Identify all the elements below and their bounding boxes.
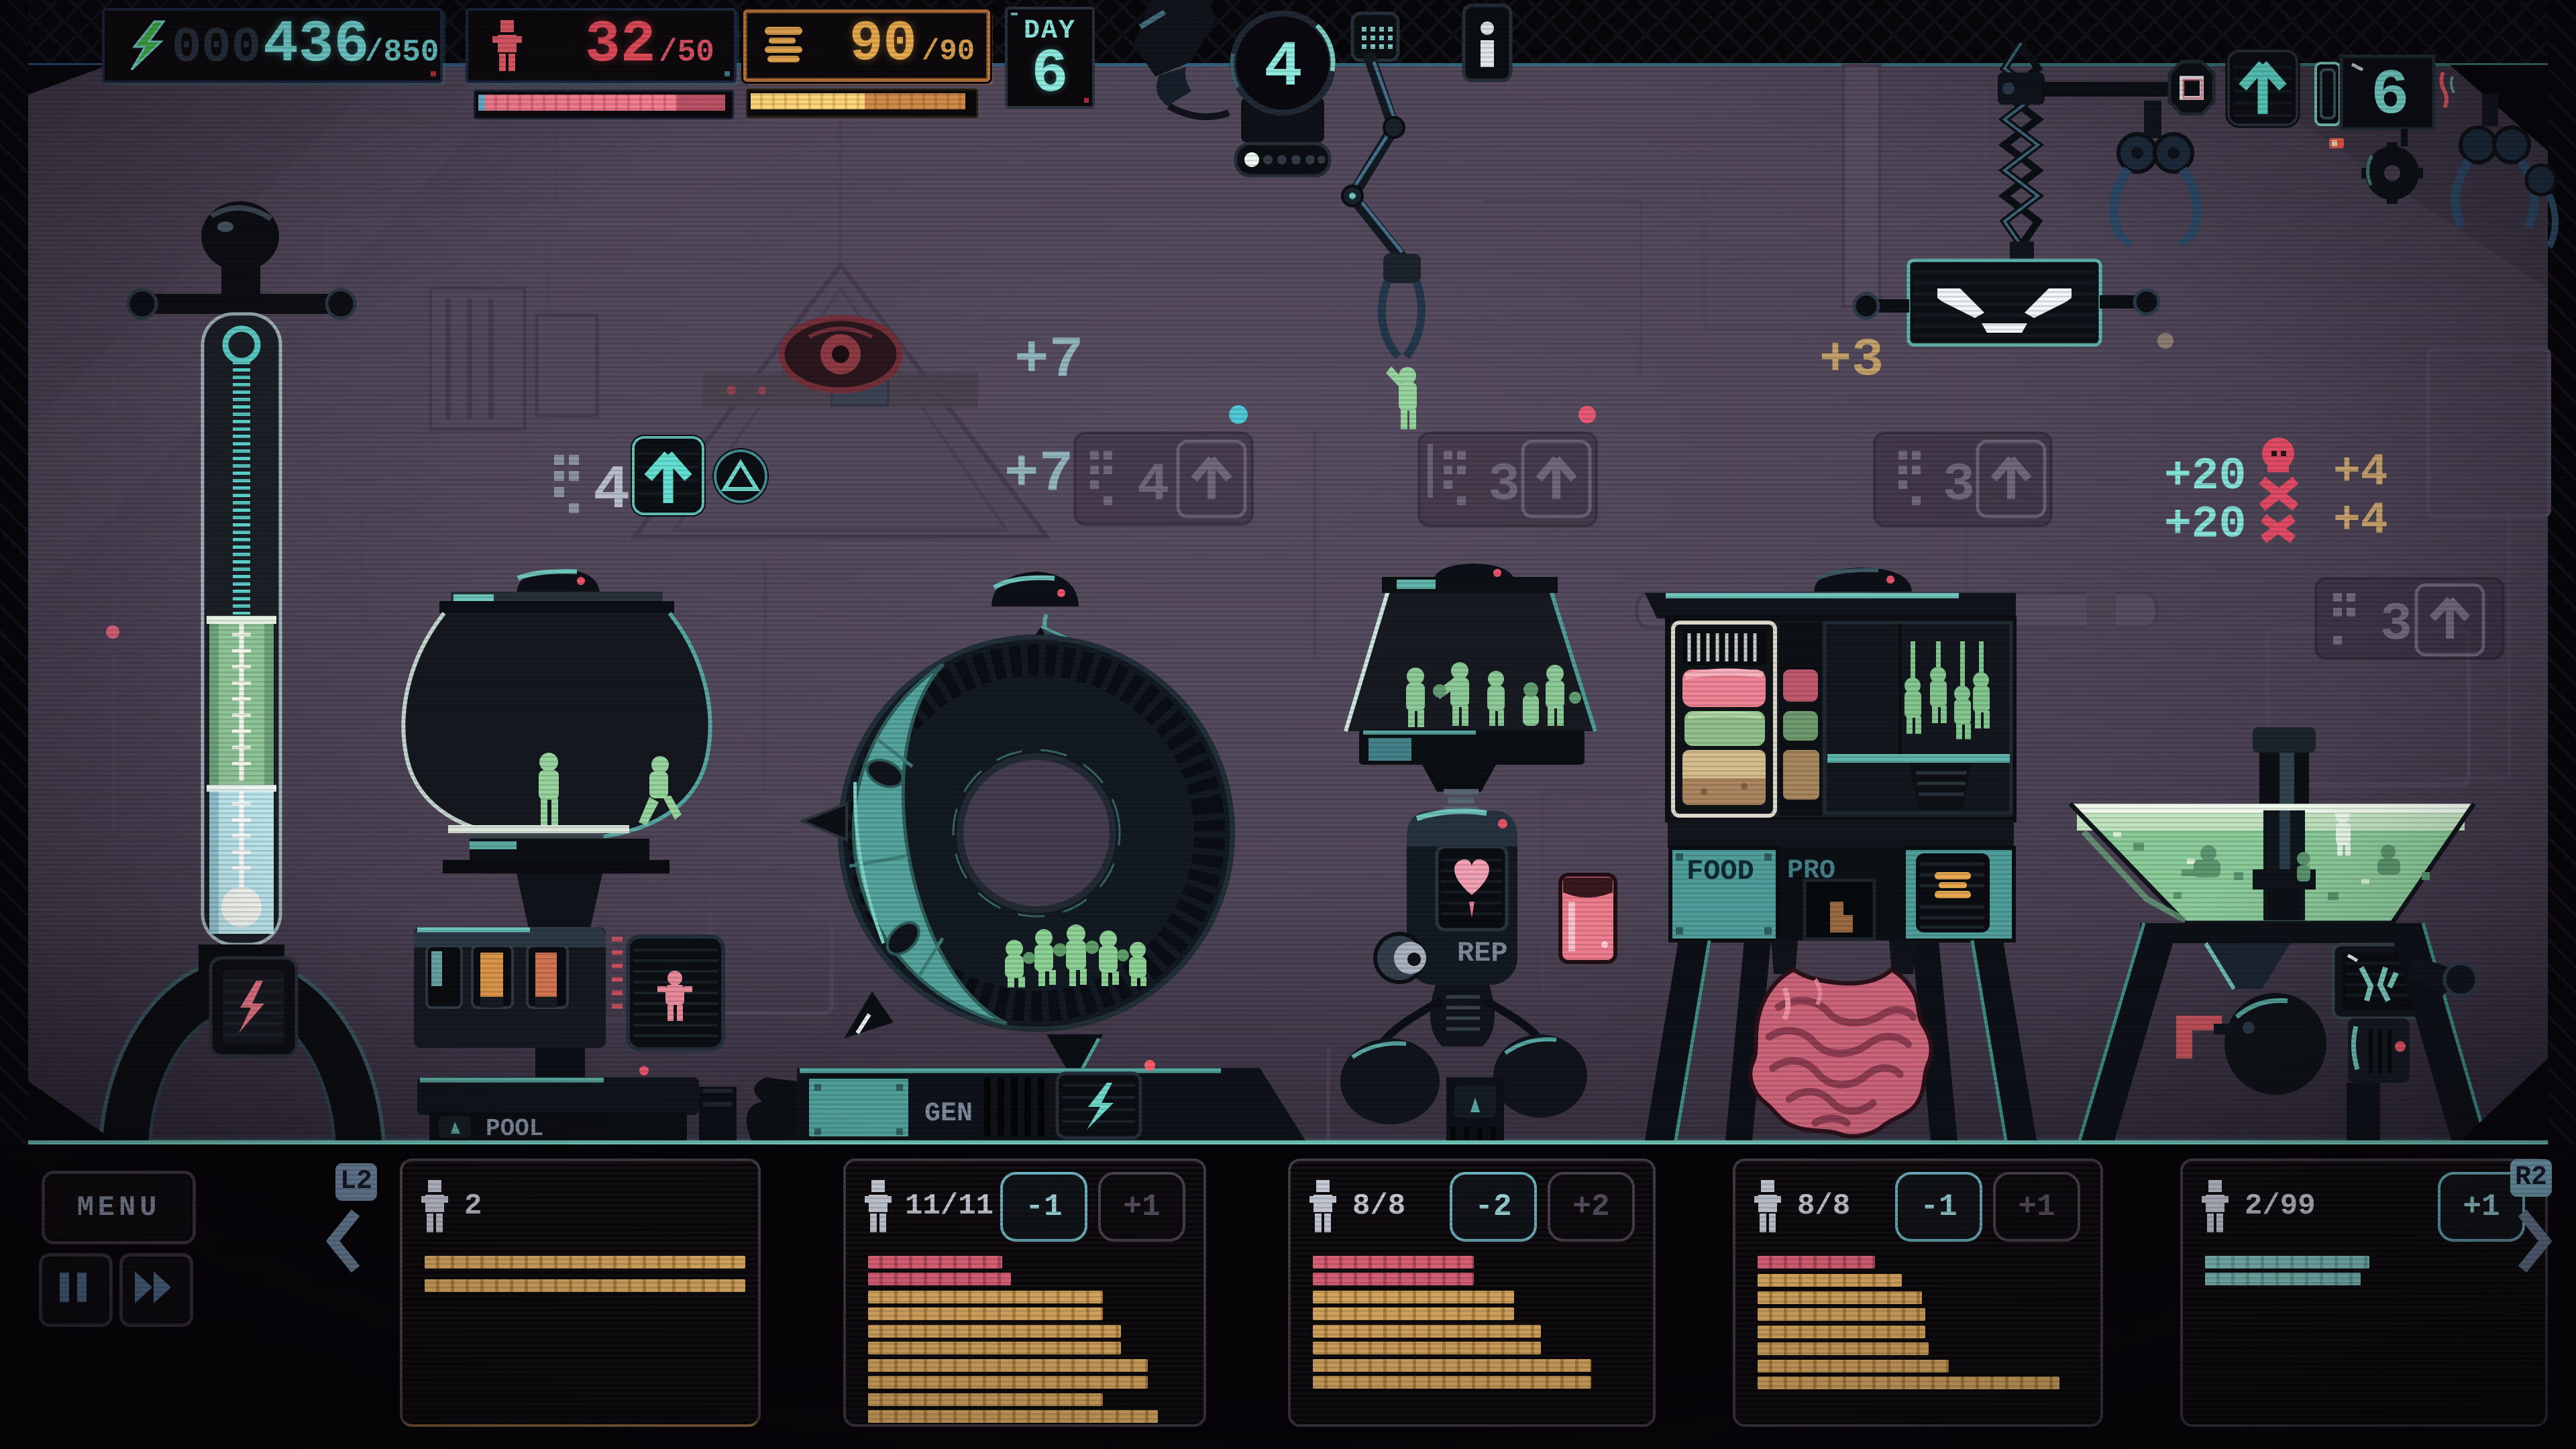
svg-text:POOL: POOL [486, 1115, 543, 1142]
svg-text:REP: REP [1457, 937, 1508, 969]
svg-text:4: 4 [1264, 31, 1303, 104]
svg-text:6: 6 [2371, 59, 2410, 132]
svg-text:GEN: GEN [924, 1099, 973, 1129]
svg-text:FOOD: FOOD [1686, 855, 1754, 888]
